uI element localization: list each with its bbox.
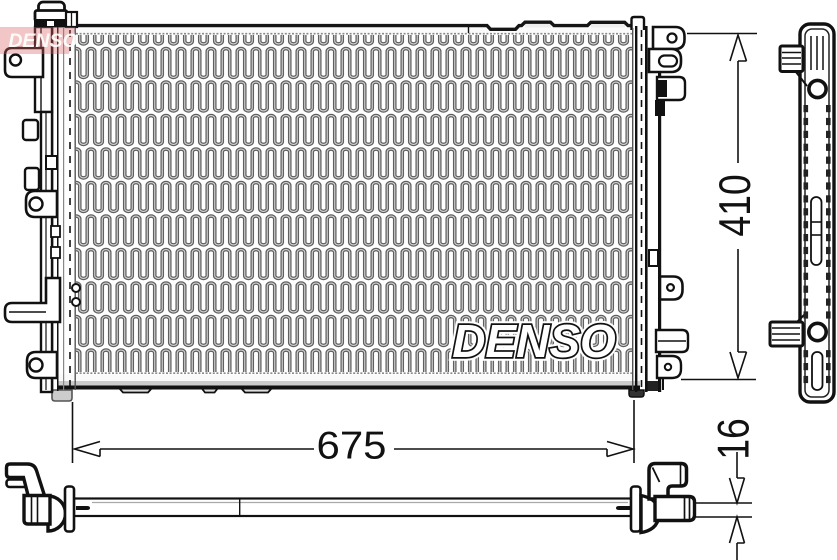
svg-text:DENSO: DENSO — [452, 315, 616, 367]
svg-text:DENSO: DENSO — [8, 30, 77, 52]
svg-text:16: 16 — [708, 418, 758, 460]
svg-text:410: 410 — [710, 174, 760, 236]
svg-text:675: 675 — [317, 424, 387, 467]
